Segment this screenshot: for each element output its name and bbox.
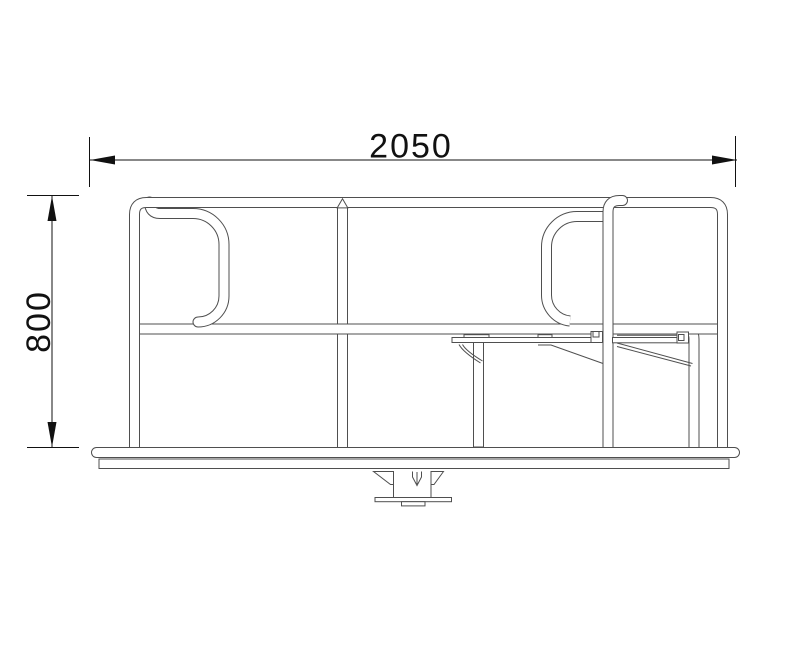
bracket-gusset-right (431, 472, 444, 485)
mounting-bracket (374, 472, 452, 506)
horizontal-dimension: 2050 (90, 128, 738, 188)
h-dim-arrow-left-icon (90, 156, 115, 165)
base-plate-outline (99, 459, 729, 469)
left-handrail-loop (150, 202, 225, 322)
technical-drawing-canvas: 2050 800 (0, 0, 800, 640)
left-shelf-endstop-inner (593, 332, 599, 338)
h-dim-label: 2050 (369, 128, 453, 166)
v-dim-arrow-bottom-icon (48, 422, 57, 447)
left-shelf-strut (538, 345, 603, 364)
guardrail-structure (97, 199, 735, 453)
right-shelf-brace-2 (617, 347, 691, 367)
bracket-tab (402, 502, 426, 506)
left-shelf-plank (452, 338, 592, 343)
left-shelf-joint (538, 335, 552, 338)
right-drop-post (683, 329, 694, 447)
left-shelf-lip (464, 335, 489, 338)
v-dim-arrow-top-icon (48, 196, 57, 221)
bracket-gusset-left (374, 472, 394, 485)
left-shelf-assembly (452, 332, 603, 448)
h-dim-arrow-right-icon (712, 156, 737, 165)
right-shelf-endstop-inner (679, 335, 685, 341)
vertical-dimension: 800 (20, 196, 79, 448)
right-shelf-brace (617, 343, 693, 364)
v-dim-label: 800 (20, 290, 58, 353)
right-shelf-assembly (613, 332, 693, 366)
right-shelf-plank (613, 338, 679, 343)
bracket-flange (375, 498, 452, 502)
right-handrail-loop (546, 217, 604, 322)
base-plate (99, 459, 729, 469)
drawing-page: 2050 800 (0, 0, 800, 640)
